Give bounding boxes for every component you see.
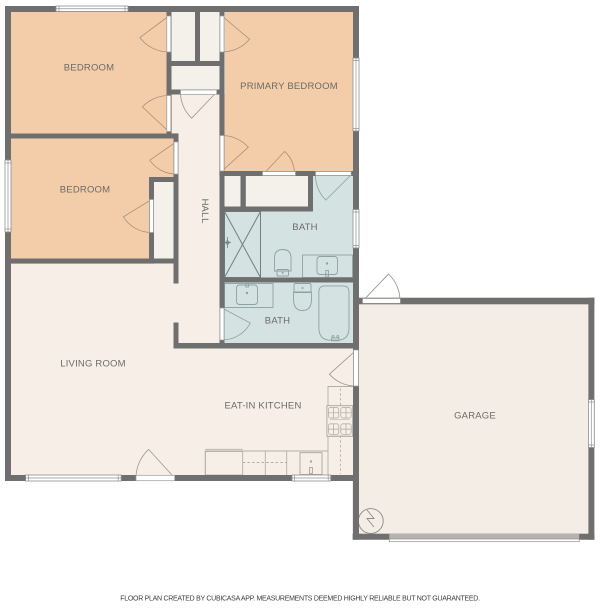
svg-text:BATH: BATH — [292, 222, 317, 233]
svg-text:BEDROOM: BEDROOM — [64, 63, 115, 74]
svg-text:PRIMARY BEDROOM: PRIMARY BEDROOM — [240, 81, 338, 92]
svg-text:BEDROOM: BEDROOM — [60, 185, 111, 196]
svg-text:LIVING ROOM: LIVING ROOM — [60, 358, 126, 369]
svg-text:BATH: BATH — [265, 315, 290, 326]
svg-text:FLOOR PLAN CREATED BY CUBICASA: FLOOR PLAN CREATED BY CUBICASA APP. MEAS… — [120, 596, 480, 603]
svg-text:L: L — [199, 212, 210, 217]
svg-text:EAT-IN KITCHEN: EAT-IN KITCHEN — [224, 401, 301, 412]
svg-text:L: L — [199, 218, 210, 223]
svg-text:GARAGE: GARAGE — [454, 410, 496, 421]
